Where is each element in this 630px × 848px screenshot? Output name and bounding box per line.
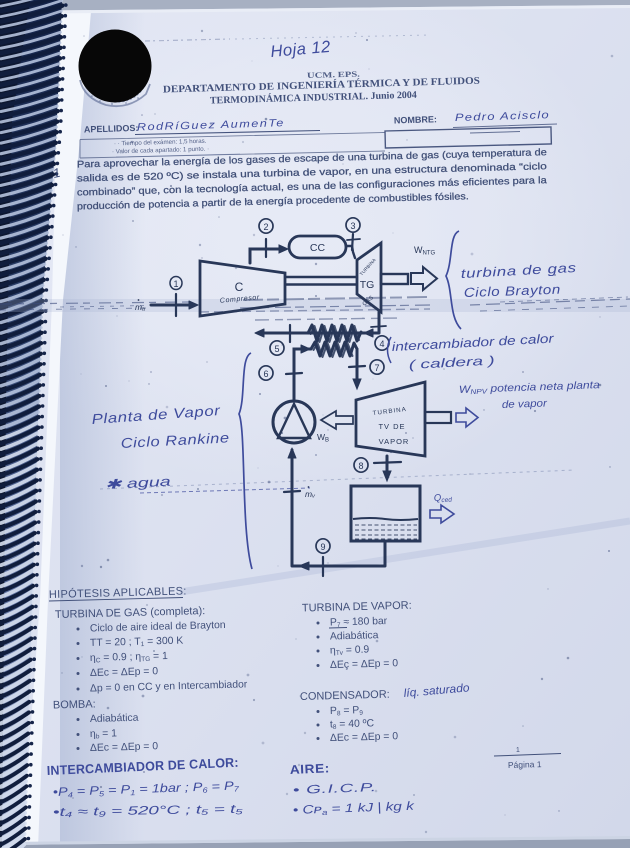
svg-text:2: 2	[263, 222, 268, 232]
svg-text:3: 3	[350, 221, 355, 231]
svg-text:Adiabática: Adiabática	[90, 713, 139, 725]
svg-text:Página 1: Página 1	[508, 759, 542, 770]
svg-text:de vapor: de vapor	[502, 397, 548, 411]
svg-text:• G.I.C.P.: • G.I.C.P.	[293, 780, 377, 797]
svg-text:Adiabática: Adiabática	[330, 630, 379, 642]
svg-text:AIRE:: AIRE:	[290, 761, 331, 777]
svg-text:ΔEç = ΔEp = 0: ΔEç = ΔEp = 0	[330, 658, 399, 671]
svg-text:4: 4	[379, 339, 384, 349]
svg-text:9: 9	[320, 542, 325, 552]
svg-text:t8 = 40 ºC: t8 = 40 ºC	[330, 718, 375, 731]
svg-text:mₐ: mₐ	[135, 302, 145, 312]
svg-text:CC: CC	[310, 242, 326, 254]
svg-text:mᵥ: mᵥ	[305, 489, 316, 499]
svg-text:APELLIDOS:: APELLIDOS:	[84, 123, 139, 135]
svg-text:VAPOR: VAPOR	[379, 437, 410, 446]
svg-text:1: 1	[516, 747, 520, 754]
svg-text:ΔEc = ΔEp = 0: ΔEc = ΔEp = 0	[90, 741, 159, 754]
svg-text:1: 1	[173, 279, 178, 289]
svg-text:C: C	[235, 280, 244, 294]
svg-text:ΔEc = ΔEp = 0: ΔEc = ΔEp = 0	[330, 731, 399, 744]
svg-text:8: 8	[358, 461, 363, 471]
svg-text:NOMBRE:: NOMBRE:	[394, 114, 437, 125]
svg-text:ηb = 1: ηb = 1	[90, 728, 118, 740]
svg-text:TG: TG	[360, 279, 375, 291]
svg-text:7: 7	[374, 363, 379, 373]
svg-text:ΔEc = ΔEp = 0: ΔEc = ΔEp = 0	[90, 666, 159, 679]
svg-text:TV DE: TV DE	[378, 422, 405, 431]
svg-text:6: 6	[263, 369, 268, 379]
svg-text:BOMBA:: BOMBA:	[53, 698, 96, 711]
svg-text:CONDENSADOR:: CONDENSADOR:	[300, 689, 390, 703]
svg-text:5: 5	[274, 344, 279, 354]
svg-text:P8 = P9: P8 = P9	[330, 705, 364, 717]
